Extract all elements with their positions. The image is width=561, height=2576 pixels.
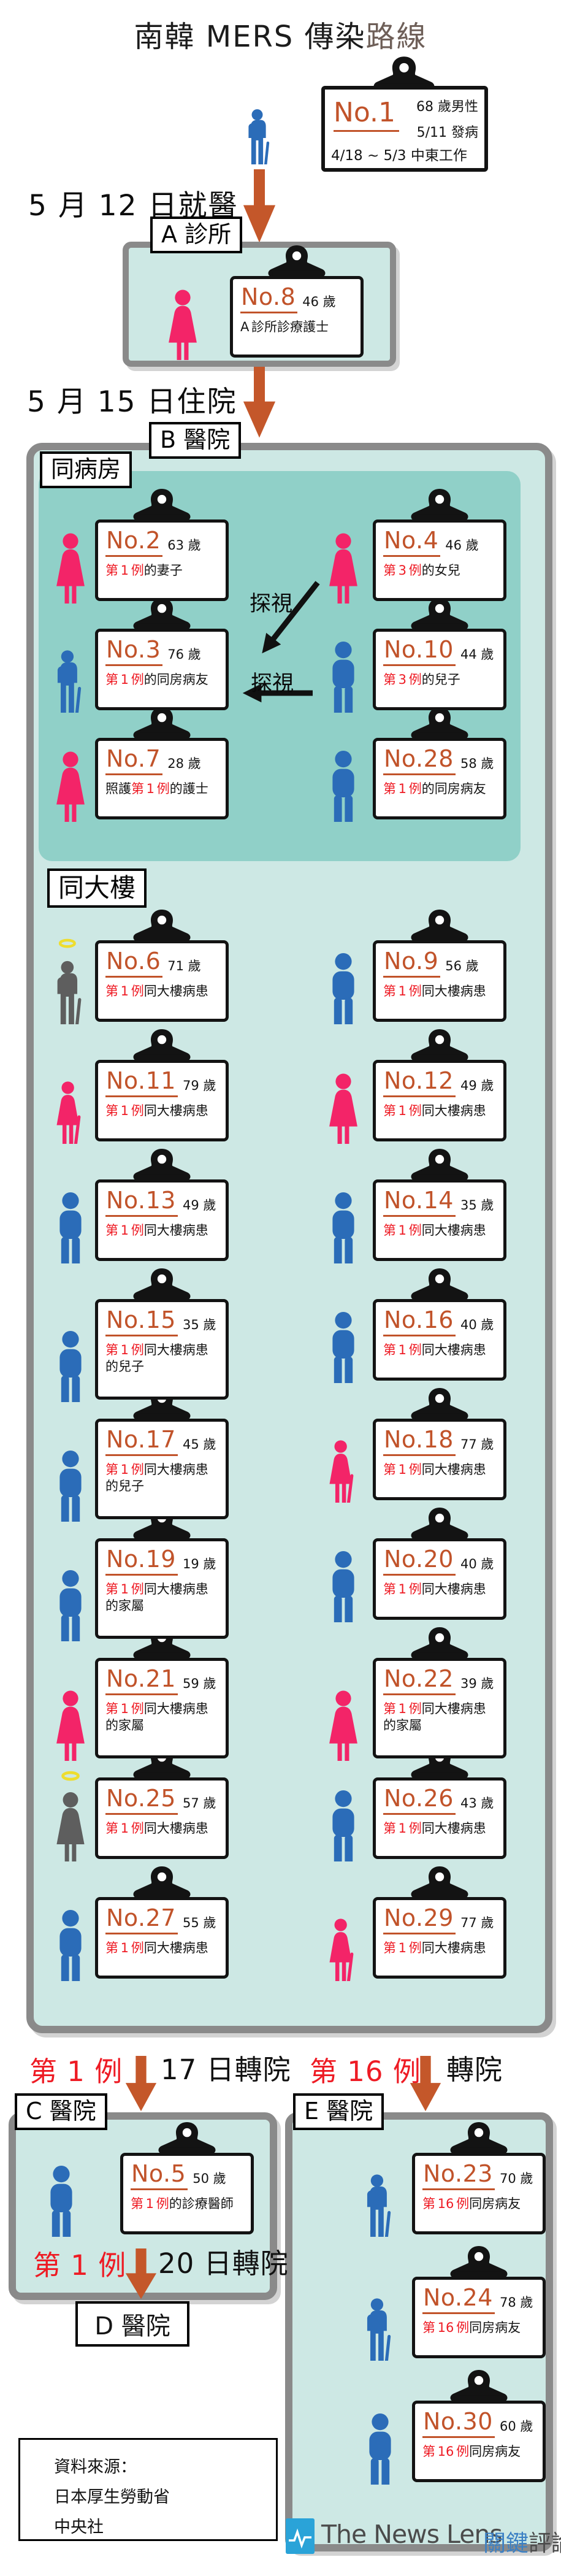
patient-age: 55 歲 (183, 1913, 216, 1934)
patient-number: No.2 (105, 529, 162, 557)
patient-number: No.19 (105, 1547, 178, 1576)
patient-clipboard-card: No.16 40 歲 第 1 例同大樓病患 (373, 1299, 506, 1381)
transfer-case-label: 第 1 例 (29, 2049, 123, 2089)
clipboard-clip-icon (258, 244, 335, 280)
clipboard-clip-icon (123, 1148, 200, 1183)
news-lens-logo-zh: 關鍵評論 (483, 2524, 561, 2558)
patient-clipboard-card: No.22 39 歲 第 1 例同大樓病患的家屬 (373, 1658, 506, 1758)
patient-description: 第 1 例的同房病友 (383, 781, 498, 797)
hospital-b-label: B 醫院 (149, 422, 241, 459)
patient-clipboard-card: No.20 40 歲 第 1 例同大樓病患 (373, 1538, 506, 1620)
patient-number: No.8 (240, 285, 297, 313)
down-arrow-icon (125, 2056, 157, 2112)
patient-number: No.15 (105, 1308, 178, 1336)
patient-description: 照護第 1 例的護士 (105, 781, 221, 797)
hospital-b-box: B 醫院 同病房 同大樓 探視 探視 No.2 63 歲 第 (26, 443, 552, 2033)
elderly-man-blue-icon (351, 2276, 410, 2361)
transfer-case-label: 第 1 例 (33, 2243, 126, 2283)
patient-description: 第 1 例同大樓病患 (383, 1581, 498, 1598)
patient-clipboard-card: No.29 77 歲 第 1 例同大樓病患 (373, 1897, 506, 1979)
woman-gray-halo-icon (44, 1771, 97, 1861)
patient-age-sex: 68 歲男性 (416, 96, 478, 115)
man-blue-icon (355, 2391, 405, 2485)
patient-age: 43 歲 (460, 1793, 494, 1815)
patient-clipboard-card: No.6 71 歲 第 1 例同大樓病患 (95, 940, 229, 1022)
woman-pink-icon (317, 512, 370, 604)
patient-clipboard-card: No.24 78 歲 第 16 例同房病友 (412, 2277, 546, 2358)
patient-number: No.6 (105, 949, 162, 978)
travel-history: 4/18 ~ 5/3 中東工作 (331, 144, 467, 164)
patient-description: 第 1 例同大樓病患的家屬 (105, 1581, 221, 1615)
patient-age: 35 歲 (460, 1195, 494, 1217)
patient-age: 57 歲 (183, 1793, 216, 1815)
patient-description: 第 1 例同大樓病患 (105, 1820, 221, 1837)
source-title: 資料來源： (54, 2452, 276, 2482)
man-blue-icon (318, 1290, 368, 1383)
elderly-woman-pink-icon (315, 1896, 372, 1981)
clipboard-clip-icon (148, 2121, 226, 2156)
clipboard-clip-icon (123, 597, 200, 632)
woman-pink-icon (44, 1669, 97, 1761)
man-blue-icon (45, 1170, 96, 1263)
man-blue-icon (36, 2144, 86, 2237)
page-title: 南韓 MERS 傳染路線 (0, 12, 561, 55)
hospital-e-label: E 醫院 (293, 2093, 384, 2130)
patient-number: No.30 (422, 2410, 495, 2438)
patient-description: 第 1 例同大樓病患 (105, 983, 221, 1000)
patient-description: 第 1 例同大樓病患的家屬 (105, 1701, 221, 1735)
down-arrow-icon (125, 2248, 157, 2300)
patient-number: No.20 (383, 1547, 456, 1576)
patient-age: 35 歲 (183, 1315, 216, 1336)
elderly-man-blue-icon (41, 628, 100, 713)
clinic-a-box: A 診所 No.8 46 歲 A 診所診療護士 (123, 242, 396, 367)
clipboard-clip-icon (123, 1865, 200, 1901)
same-ward-label: 同病房 (40, 451, 132, 488)
clipboard-clip-icon (401, 908, 478, 944)
patient-clipboard-card: No.5 50 歲 第 1 例的診療醫師 (120, 2153, 254, 2234)
halo-icon (63, 1773, 78, 1779)
clipboard-clip-icon (401, 1626, 478, 1662)
data-source-box: 資料來源： 日本厚生勞動省 中央社 (18, 2438, 278, 2541)
patient-number: No.17 (105, 1428, 178, 1456)
man-blue-icon (45, 1888, 96, 1981)
patient-number: No.12 (383, 1069, 456, 1097)
patient-description: 第 1 例的診療醫師 (131, 2196, 246, 2212)
hospital-c-label: C 醫院 (15, 2093, 107, 2130)
patient-clipboard-card: No.7 28 歲 照護第 1 例的護士 (95, 738, 229, 819)
patient-clipboard-card: No.28 58 歲 第 1 例的同房病友 (373, 738, 506, 819)
patient-number: No.22 (383, 1667, 456, 1695)
patient-age: 28 歲 (167, 754, 200, 775)
patient-age: 49 歲 (460, 1076, 494, 1097)
clipboard-clip-icon (123, 908, 200, 944)
patient-description: 第 1 例的同房病友 (105, 672, 221, 688)
clinic-a-label: A 診所 (150, 217, 242, 253)
patient-number: No.13 (105, 1189, 178, 1217)
transfer-action-label: 轉院 (446, 2047, 503, 2087)
elderly-woman-pink-icon (42, 1059, 99, 1144)
down-arrow-icon (410, 2056, 441, 2112)
patient-age: 71 歲 (167, 956, 200, 978)
patient-age: 49 歲 (183, 1195, 216, 1217)
patient-number: No.28 (383, 747, 456, 775)
patient-number: No.5 (131, 2162, 188, 2190)
clipboard-clip-icon (401, 1865, 478, 1901)
transfer-action-label: 20 日轉院 (158, 2241, 289, 2281)
clipboard-clip-icon (401, 1148, 478, 1183)
clipboard-clip-icon (440, 2121, 517, 2156)
clipboard-clip-icon (401, 1506, 478, 1542)
patient-number: No.10 (383, 638, 456, 666)
patient-description: 第 1 例的妻子 (105, 562, 221, 579)
elderly-man-blue-icon (351, 2152, 410, 2237)
patient-age: 77 歲 (460, 1435, 494, 1456)
patient-number: No.23 (422, 2162, 495, 2190)
down-arrow-icon (243, 169, 276, 244)
patient-age: 45 歲 (183, 1435, 216, 1456)
patient-clipboard-card: No.21 59 歲 第 1 例同大樓病患的家屬 (95, 1658, 229, 1758)
elderly-man-gray-halo-icon (41, 938, 100, 1024)
patient-number: No.9 (383, 949, 440, 978)
man-blue-icon (45, 1309, 96, 1402)
patient-clipboard-card: No.3 76 歲 第 1 例的同房病友 (95, 629, 229, 710)
patient-number: No.11 (105, 1069, 178, 1097)
source-line: 日本厚生勞動省 (54, 2482, 276, 2512)
patient-clipboard-card: No.23 70 歲 第 16 例同房病友 (412, 2153, 546, 2234)
patient-clipboard-card: No.17 45 歲 第 1 例同大樓病患的兒子 (95, 1419, 229, 1519)
patient-clipboard-card: No.10 44 歲 第 3 例的兒子 (373, 629, 506, 710)
patient-number: No.24 (422, 2286, 495, 2314)
patient-description: 第 1 例同大樓病患 (383, 983, 498, 1000)
patient-clipboard-card: No.8 46 歲 A 診所診療護士 (230, 276, 364, 358)
patient-description: 第 3 例的兒子 (383, 672, 498, 688)
patient-clipboard-card: No.15 35 歲 第 1 例同大樓病患的兒子 (95, 1299, 229, 1400)
woman-pink-icon (44, 730, 97, 822)
visit-label: 探視 (251, 666, 294, 697)
patient-age: 19 歲 (183, 1554, 216, 1576)
patient-age: 56 歲 (445, 956, 478, 978)
patient-number: No.21 (105, 1667, 178, 1695)
patient-description: 第 1 例同大樓病患的兒子 (105, 1462, 221, 1495)
clipboard-clip-icon (401, 1267, 478, 1303)
patient-age: 40 歲 (460, 1554, 494, 1576)
clipboard-clip-icon (440, 2245, 517, 2280)
patient-description: 第 1 例同大樓病患 (383, 1342, 498, 1359)
woman-pink-icon (317, 1052, 370, 1144)
man-blue-icon (318, 931, 368, 1024)
patient-age: 40 歲 (460, 1315, 494, 1336)
patient-age: 44 歲 (460, 645, 494, 666)
elderly-woman-pink-icon (315, 1418, 372, 1503)
visit-label: 探視 (250, 586, 292, 618)
patient-description: 第 1 例同大樓病患 (105, 1222, 221, 1239)
patient-clipboard-card: No.25 57 歲 第 1 例同大樓病患 (95, 1777, 229, 1859)
patient-description: 第 1 例同大樓病患 (105, 1103, 221, 1119)
patient-description: 第 16 例同房病友 (422, 2444, 538, 2460)
patient-description: 第 1 例同大樓病患 (383, 1940, 498, 1957)
patient-number: No.3 (105, 638, 162, 666)
same-building-label: 同大樓 (47, 868, 147, 908)
patient-clipboard-card: No.19 19 歲 第 1 例同大樓病患的家屬 (95, 1538, 229, 1639)
patient-clipboard-card: No.12 49 歲 第 1 例同大樓病患 (373, 1060, 506, 1141)
patient-age: 50 歲 (193, 2169, 226, 2190)
patient-age: 60 歲 (500, 2417, 533, 2438)
patient-description: A 診所診療護士 (240, 319, 356, 335)
woman-pink-icon (44, 512, 97, 604)
patient-description: 第 1 例同大樓病患 (383, 1222, 498, 1239)
clipboard-clip-icon (401, 706, 478, 742)
patient-number: No.18 (383, 1428, 456, 1456)
patient-clipboard-card: No.30 60 歲 第 16 例同房病友 (412, 2401, 546, 2482)
patient-number: No.29 (383, 1906, 456, 1934)
news-lens-logo-icon (286, 2518, 315, 2554)
man-blue-icon (318, 1170, 368, 1263)
patient-clipboard-card: No.27 55 歲 第 1 例同大樓病患 (95, 1897, 229, 1979)
patient-number: No.4 (383, 529, 440, 557)
patient-description: 第 3 例的女兒 (383, 562, 498, 579)
man-blue-icon (45, 1428, 96, 1522)
patient-age: 59 歲 (183, 1674, 216, 1695)
patient-description: 第 1 例同大樓病患 (383, 1103, 498, 1119)
patient-age: 63 歲 (167, 535, 200, 557)
patient-description: 第 1 例同大樓病患 (105, 1940, 221, 1957)
patient-clipboard-card: No.9 56 歲 第 1 例同大樓病患 (373, 940, 506, 1022)
patient-number: No.1 (334, 99, 399, 132)
patient-description: 第 16 例同房病友 (422, 2320, 538, 2336)
source-line: 中央社 (54, 2512, 276, 2542)
patient-description: 第 1 例同大樓病患的兒子 (105, 1342, 221, 1376)
clipboard-clip-icon (123, 706, 200, 742)
man-blue-icon (318, 729, 368, 822)
transfer-case-label: 第 16 例 (310, 2049, 421, 2089)
clipboard-clip-icon (440, 2369, 517, 2404)
hospital-d-label: D 醫院 (75, 2301, 189, 2347)
patient-number: No.26 (383, 1787, 456, 1815)
patient-clipboard-card: No.14 35 歲 第 1 例同大樓病患 (373, 1179, 506, 1261)
transfer-action-label: 17 日轉院 (161, 2047, 291, 2087)
elderly-man-blue-icon (235, 90, 285, 164)
patient-age: 39 歲 (460, 1674, 494, 1695)
patient-number: No.16 (383, 1308, 456, 1336)
man-blue-icon (318, 1768, 368, 1861)
woman-pink-icon (317, 1669, 370, 1761)
clipboard-clip-icon (401, 1387, 478, 1422)
pulse-icon (286, 2518, 315, 2554)
news-lens-logo-text: The News Lens (321, 2520, 502, 2549)
patient-number: No.14 (383, 1189, 456, 1217)
clipboard-clip-icon (401, 1028, 478, 1064)
clipboard-clip-icon (401, 597, 478, 632)
patient-number: No.25 (105, 1787, 178, 1815)
patient-clipboard-card: No.4 46 歲 第 3 例的女兒 (373, 519, 506, 601)
step-label-hospitalized: 5 月 15 日住院 (27, 378, 237, 420)
patient-age: 58 歲 (460, 754, 494, 775)
man-blue-icon (318, 1529, 368, 1622)
clipboard-clip-icon (123, 1267, 200, 1303)
patient-description: 第 1 例同大樓病患 (383, 1462, 498, 1478)
patient-age: 46 歲 (445, 535, 478, 557)
patient-description: 第 16 例同房病友 (422, 2196, 538, 2212)
patient-clipboard-card: No.13 49 歲 第 1 例同大樓病患 (95, 1179, 229, 1261)
patient-clipboard-card: No.2 63 歲 第 1 例的妻子 (95, 519, 229, 601)
onset-date: 5/11 發病 (417, 121, 478, 141)
clipboard-clip-icon (123, 1028, 200, 1064)
hospital-e-box: E 醫院 No.23 70 歲 第 16 例同房病友 No.24 78 歲 第 … (285, 2112, 553, 2551)
man-blue-icon (318, 619, 368, 713)
patient-description: 第 1 例同大樓病患的家屬 (383, 1701, 498, 1735)
down-arrow-icon (243, 367, 276, 439)
halo-icon (60, 940, 75, 946)
patient-age: 70 歲 (500, 2169, 533, 2190)
patient-age: 76 歲 (167, 645, 200, 666)
patient-age: 77 歲 (460, 1913, 494, 1934)
patient-number: No.7 (105, 747, 162, 775)
index-patient-card: No.1 68 歲男性 5/11 發病 4/18 ~ 5/3 中東工作 (321, 86, 488, 172)
patient-age: 78 歲 (500, 2293, 533, 2314)
patient-clipboard-card: No.11 79 歲 第 1 例同大樓病患 (95, 1060, 229, 1141)
patient-number: No.27 (105, 1906, 178, 1934)
woman-pink-icon (156, 268, 209, 360)
clipboard-clip-icon (401, 488, 478, 523)
patient-clipboard-card: No.26 43 歲 第 1 例同大樓病患 (373, 1777, 506, 1859)
mers-infographic: 南韓 MERS 傳染路線 No.1 68 歲男性 5/11 發病 4/18 ~ … (0, 0, 561, 2576)
patient-age: 46 歲 (302, 292, 335, 313)
man-blue-icon (45, 1548, 96, 1641)
patient-clipboard-card: No.18 77 歲 第 1 例同大樓病患 (373, 1419, 506, 1500)
patient-description: 第 1 例同大樓病患 (383, 1820, 498, 1837)
patient-age: 79 歲 (183, 1076, 216, 1097)
clipboard-clip-icon (123, 488, 200, 523)
